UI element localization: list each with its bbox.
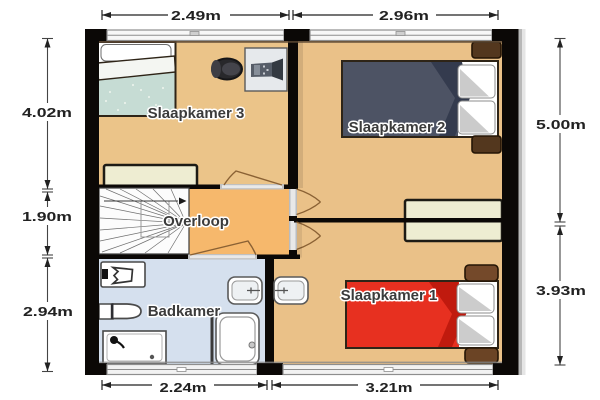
svg-text:2.49m: 2.49m: [171, 9, 221, 23]
svg-text:Badkamer: Badkamer: [148, 303, 221, 320]
svg-text:3.93m: 3.93m: [536, 284, 586, 298]
svg-text:4.02m: 4.02m: [22, 106, 72, 120]
svg-text:1.90m: 1.90m: [22, 210, 72, 224]
svg-text:2.24m: 2.24m: [160, 381, 207, 395]
svg-text:5.00m: 5.00m: [536, 118, 586, 132]
svg-text:Overloop: Overloop: [163, 213, 229, 230]
svg-text:Slaapkamer 3: Slaapkamer 3: [148, 105, 245, 122]
svg-text:3.21m: 3.21m: [366, 381, 413, 395]
svg-text:Slaapkamer 2: Slaapkamer 2: [349, 119, 446, 136]
svg-text:Slaapkamer 1: Slaapkamer 1: [341, 287, 438, 304]
svg-text:2.96m: 2.96m: [379, 9, 429, 23]
svg-text:2.94m: 2.94m: [23, 305, 73, 319]
